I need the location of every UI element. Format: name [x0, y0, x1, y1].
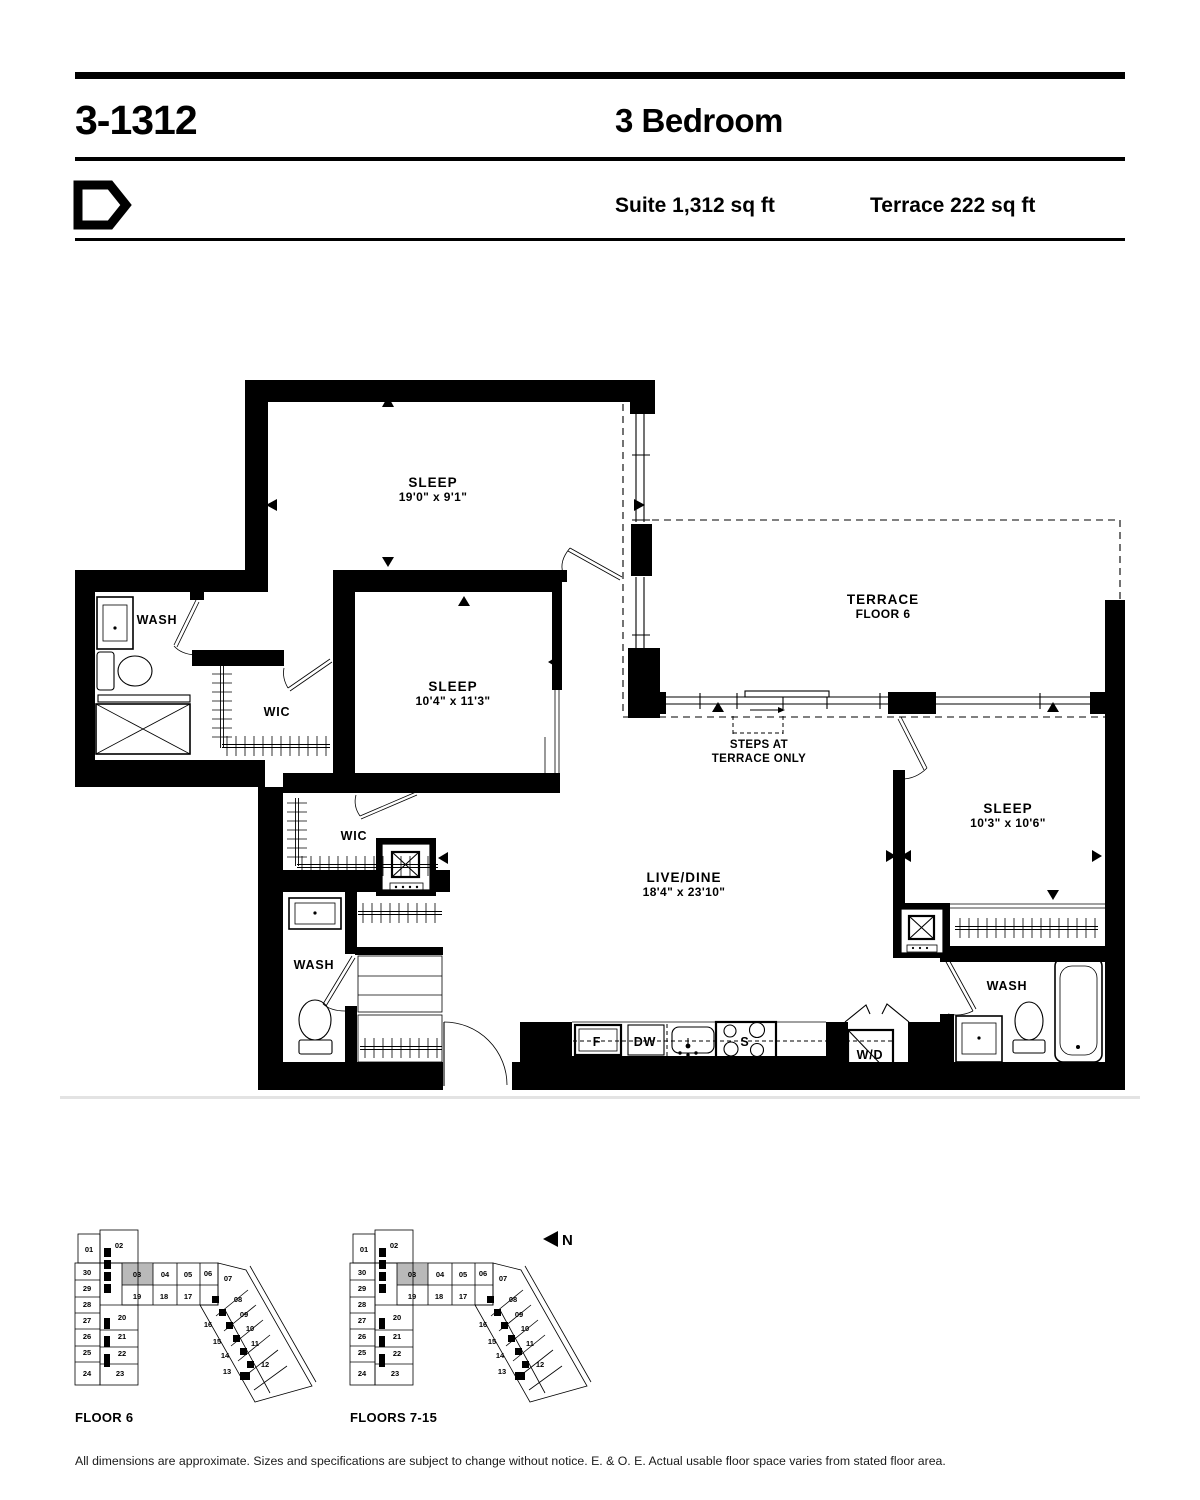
floorplan-page: 3-1312 3 Bedroom Suite 1,312 sq ft Terra…	[0, 0, 1200, 1500]
room-dimensions: FLOOR 6	[856, 607, 911, 621]
keyplan-unit-number: 08	[234, 1295, 242, 1304]
keyplan-unit-number: 23	[116, 1369, 124, 1378]
header-rule-mid	[75, 157, 1125, 161]
room-dimensions: 18'4" x 23'10"	[643, 885, 726, 899]
unit-marker-icon	[73, 180, 133, 230]
north-indicator: N	[543, 1231, 573, 1249]
keyplan-caption-floor6: FLOOR 6	[75, 1410, 133, 1425]
keyplan-unit-number: 02	[115, 1241, 123, 1250]
keyplan-unit-number: 28	[83, 1300, 91, 1309]
keyplan-unit-number: 26	[83, 1332, 91, 1341]
room-dimensions: 10'4" x 11'3"	[415, 694, 490, 708]
plan-annotations: STEPS ATTERRACE ONLY	[712, 739, 806, 765]
keyplan-unit-number: 05	[184, 1270, 192, 1279]
room-dimensions: 19'0" x 9'1"	[399, 490, 468, 504]
doors	[174, 548, 976, 1086]
floorplan-drawing: SLEEP19'0" x 9'1"SLEEP10'4" x 11'3"SLEEP…	[60, 360, 1140, 1105]
windows	[632, 405, 1105, 709]
keyplan-unit-number: 25	[83, 1348, 91, 1357]
keyplan-unit-number: 22	[118, 1349, 126, 1358]
fixture-label: WASH	[987, 979, 1028, 993]
fixture-label: WIC	[341, 829, 368, 843]
room-name: SLEEP	[983, 801, 1032, 816]
unit-type: 3 Bedroom	[615, 102, 783, 140]
annotation: STEPS AT	[730, 739, 788, 751]
fixture-label: DW	[634, 1035, 656, 1049]
terrace-area: Terrace 222 sq ft	[870, 194, 1035, 218]
keyplan-unit-number: 06	[204, 1269, 212, 1278]
annotation: TERRACE ONLY	[712, 753, 806, 765]
keyplan-unit-number: 13	[223, 1367, 231, 1376]
unit-number: 3-1312	[75, 97, 197, 144]
keyplan-caption-floors7-15: FLOORS 7-15	[350, 1410, 437, 1425]
keyplan-unit-number: 10	[246, 1324, 254, 1333]
fixture-label: F	[593, 1035, 601, 1049]
fixture-label: S	[740, 1035, 749, 1049]
keyplan-unit-number: 12	[261, 1360, 269, 1369]
room-name: SLEEP	[428, 679, 477, 694]
keyplan-drawing: 0102302928272625242320212203040506071918…	[60, 1222, 680, 1412]
keyplan-floors7-15	[350, 1230, 591, 1402]
walls	[75, 380, 1125, 1090]
north-label: N	[562, 1232, 573, 1249]
fixture-label: W/D	[857, 1048, 884, 1062]
disclaimer: All dimensions are approximate. Sizes an…	[75, 1454, 1125, 1468]
terrace-boundary	[623, 392, 1120, 735]
header-rule-top	[75, 72, 1125, 79]
keyplan-unit-number: 09	[240, 1310, 248, 1319]
keyplan-unit-number: 01	[85, 1245, 93, 1254]
keyplan-unit-number: 29	[83, 1284, 91, 1293]
keyplan-unit-number: 27	[83, 1316, 91, 1325]
fixture-label: WASH	[294, 958, 335, 972]
keyplan-unit-number: 17	[184, 1292, 192, 1301]
room-name: TERRACE	[847, 592, 919, 607]
header-rule-bottom	[75, 238, 1125, 241]
keyplan-unit-number: 24	[83, 1369, 92, 1378]
fixture-label: WIC	[264, 705, 291, 719]
keyplan-unit-number: 21	[118, 1332, 126, 1341]
keyplan-unit-number: 03	[133, 1270, 141, 1279]
keyplan-unit-number: 11	[251, 1339, 259, 1348]
room-name: LIVE/DINE	[646, 870, 721, 885]
keyplan-unit-number: 30	[83, 1268, 91, 1277]
page-fold-line	[60, 1096, 1140, 1099]
bath3-fixtures	[956, 958, 1102, 1062]
fixture-label: WASH	[137, 613, 178, 627]
keyplan-unit-number: 15	[213, 1337, 221, 1346]
bath2-fixtures	[289, 898, 341, 1054]
room-name: SLEEP	[408, 475, 457, 490]
keyplan-unit-number: 19	[133, 1292, 141, 1301]
room-labels: SLEEP19'0" x 9'1"SLEEP10'4" x 11'3"SLEEP…	[399, 475, 1046, 899]
room-dimensions: 10'3" x 10'6"	[970, 816, 1046, 830]
bath1-halfwall	[98, 695, 190, 702]
keyplan-unit-number: 07	[224, 1274, 232, 1283]
keyplan-unit-number: 20	[118, 1313, 126, 1322]
suite-area: Suite 1,312 sq ft	[615, 194, 775, 218]
keyplan-unit-number: 04	[161, 1270, 170, 1279]
keyplan-unit-number: 18	[160, 1292, 168, 1301]
keyplan-unit-number: 14	[221, 1351, 230, 1360]
keyplan-unit-number: 16	[204, 1320, 212, 1329]
keyplan-floor6: 0102302928272625242320212203040506071918…	[75, 1230, 316, 1402]
